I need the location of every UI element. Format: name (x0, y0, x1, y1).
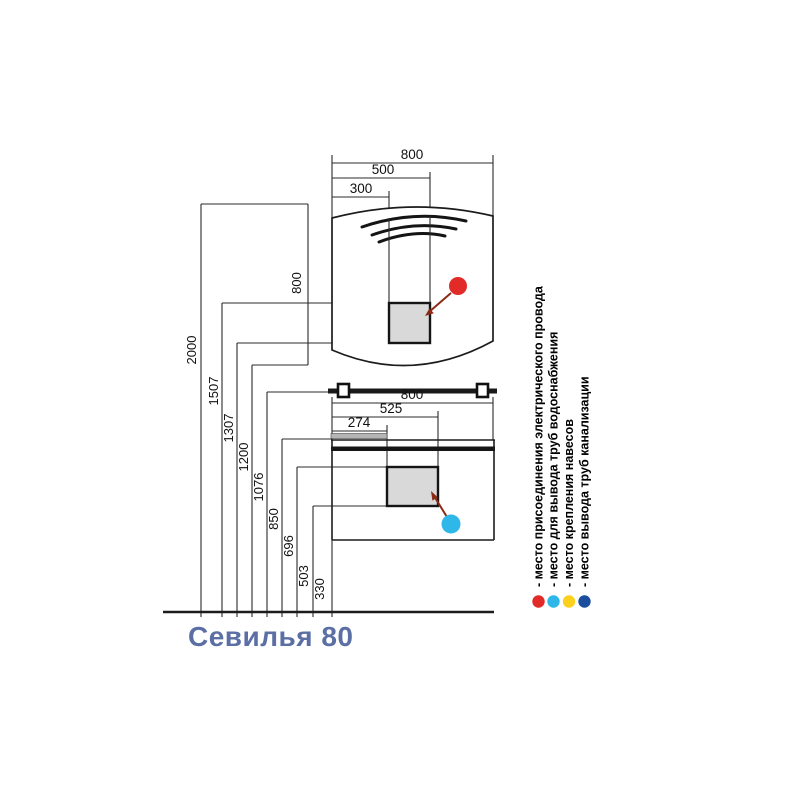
countertop-band (331, 447, 495, 452)
mirror-front-view (332, 207, 493, 366)
product-title: Севилья 80 (188, 621, 353, 652)
legend-dot-hangers (563, 595, 575, 607)
legend-label-hangers: - место крепления навесов (562, 419, 576, 587)
mirror-height-label: 800 (289, 272, 304, 294)
mirror-height-dimension: 800 (289, 204, 308, 365)
water-marker (431, 491, 461, 534)
height-label-503: 503 (296, 565, 311, 587)
water-supply-zone (387, 467, 438, 506)
diagram-canvas: 2000 1507 1307 1200 1076 850 696 503 330… (0, 0, 800, 800)
mirror-width-label: 800 (401, 147, 424, 162)
legend: - место присоединения электрического про… (532, 285, 592, 608)
water-marker-dot (442, 515, 461, 534)
height-label-2000: 2000 (184, 336, 199, 365)
installation-diagram: 2000 1507 1307 1200 1076 850 696 503 330… (0, 0, 800, 800)
height-label-1507: 1507 (206, 377, 221, 406)
mirror-inner-label: 300 (350, 181, 373, 196)
legend-dot-sewage (578, 595, 590, 607)
mirror-mid-label: 500 (372, 162, 395, 177)
height-label-1076: 1076 (251, 473, 266, 502)
legend-dot-electrical (532, 595, 544, 607)
legend-label-electrical: - место присоединения электрического про… (532, 285, 546, 587)
vanity-back-strip (331, 434, 387, 439)
shelf-bracket-right (477, 384, 488, 397)
vanity-width-label: 800 (401, 387, 424, 402)
height-label-696: 696 (281, 535, 296, 557)
vanity-front-view (331, 434, 495, 541)
vanity-inner-label: 274 (348, 415, 371, 430)
shelf-bracket-left (338, 384, 349, 397)
electrical-connection-zone (389, 303, 430, 343)
legend-label-water: - место для вывода труб водоснабжения (547, 332, 561, 587)
height-label-1200: 1200 (236, 443, 251, 472)
vanity-mid-label: 525 (380, 401, 403, 416)
height-label-850: 850 (266, 508, 281, 530)
vanity-width-dimensions: 800 525 274 (332, 387, 493, 467)
height-label-1307: 1307 (221, 414, 236, 443)
height-label-330: 330 (312, 578, 327, 600)
electrical-marker-dot (449, 277, 467, 295)
legend-label-sewage: - место вывода труб канализации (578, 376, 592, 587)
legend-dot-water (547, 595, 559, 607)
